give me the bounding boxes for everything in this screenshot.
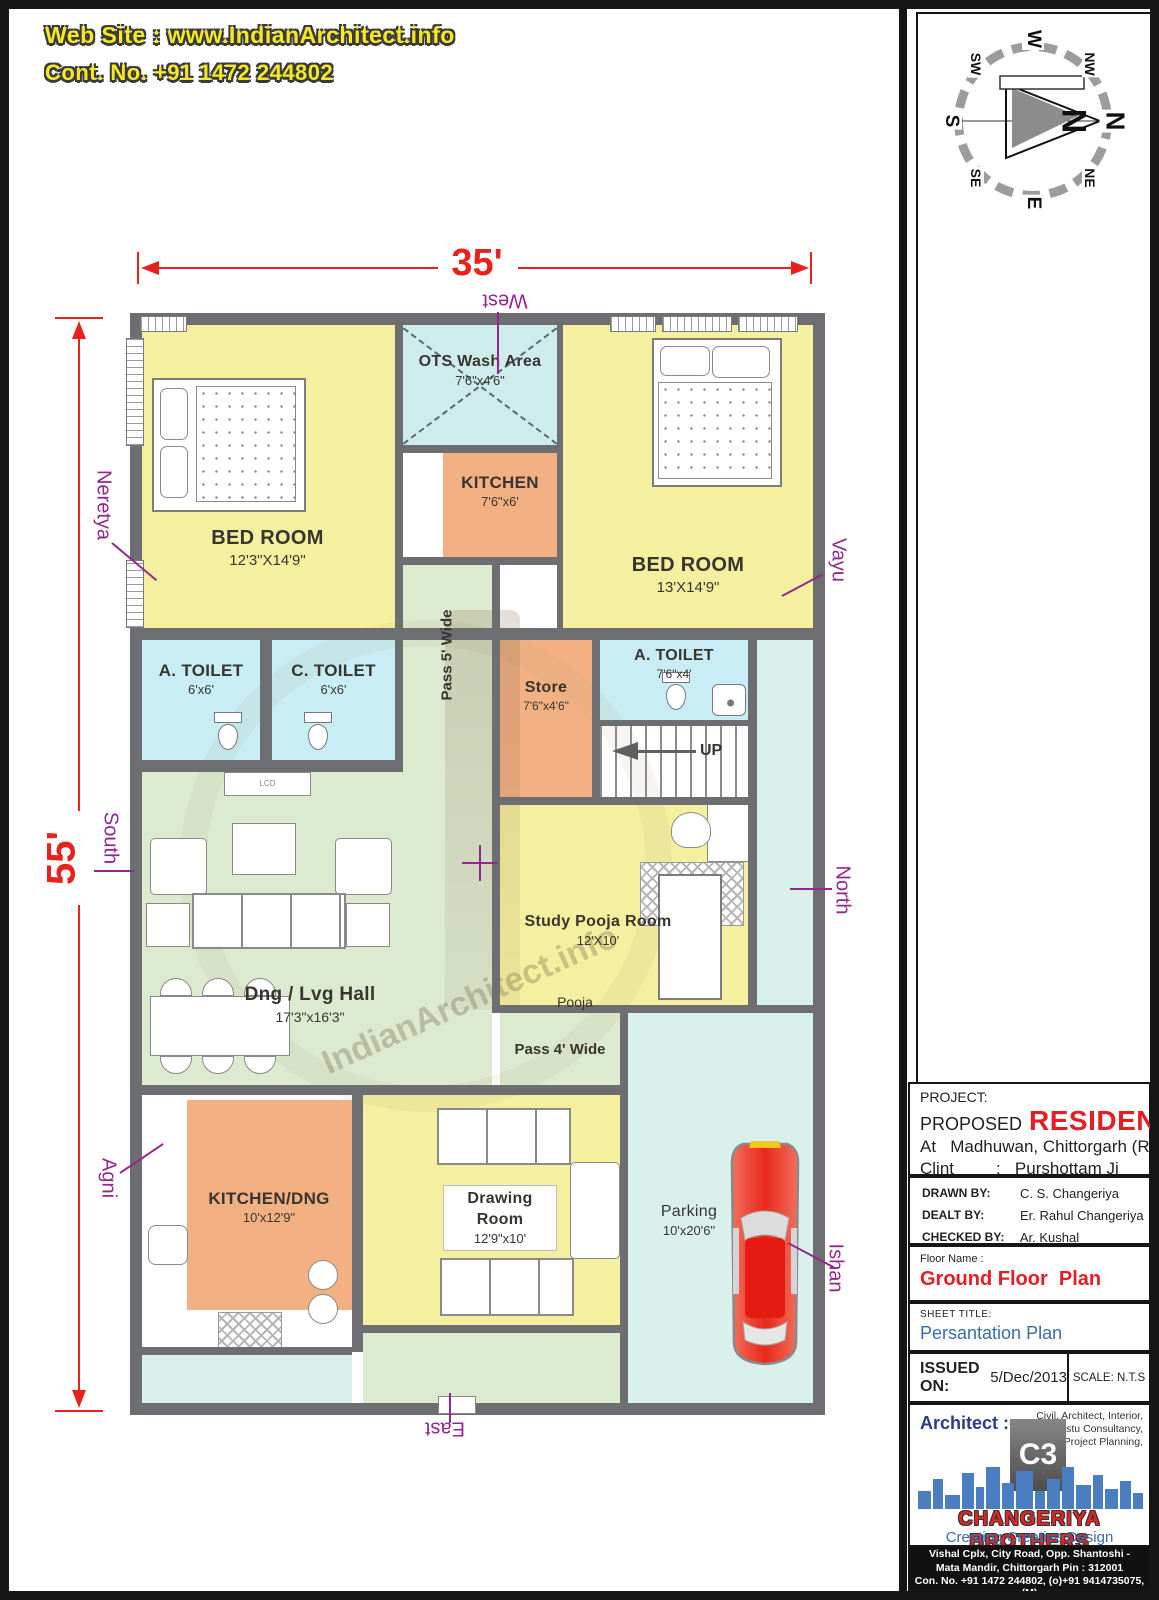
room-name: C. TOILET [272,660,395,682]
room-name: Dng / Lvg Hall [200,983,420,1008]
attached-toilet2-label: A. TOILET 7'6"x4' [600,646,748,682]
coffee-table-icon [232,823,296,875]
proposed-label: PROPOSED [920,1114,1022,1135]
wall [403,557,557,565]
vastu-cross [479,845,481,881]
wall [403,445,557,453]
project-location: At Madhuwan, Chittorgarh (Raj.) [920,1137,1149,1157]
window [662,316,732,332]
direction-north: North [831,866,854,915]
drawn-by-value: C. S. Changeriya [1020,1186,1119,1201]
drawing-room-label: Drawing Room 12'9"x10' [443,1185,557,1251]
sheet-title-label: SHEET TITLE: [920,1309,1149,1320]
direction-east: East [425,1417,465,1440]
tv-unit-icon: LCD [224,772,311,796]
room-name: KITCHEN [443,472,557,494]
sofa-icon [440,1258,574,1316]
up-label: UP [700,741,722,762]
bedroom2-label: BED ROOM 13'X14'9" [578,552,798,598]
side-passage-floor [757,640,813,1005]
issued-box: ISSUED ON: 5/Dec/2013 SCALE: N.T.S [908,1352,1151,1403]
study-label: Study Pooja Room 12'X10' [498,912,698,950]
project-type: RESIDENTIAL [1029,1105,1159,1137]
direction-ishan: Ishan [824,1244,847,1293]
room-name: Study Pooja Room [498,912,698,933]
room-name: A. TOILET [142,660,260,682]
height-dimension: 55' [40,831,85,885]
address-box: Vishal Cplx, City Road, Opp. Shantoshi -… [908,1545,1151,1591]
lcd-label: LCD [259,779,275,788]
floor-plan-sheet: Web Site : www.IndianArchitect.info Cont… [0,0,1159,1600]
burner-icon [308,1260,338,1290]
sofa-icon [437,1108,571,1165]
compass-e: E [1022,195,1044,212]
washbasin-icon [712,684,746,716]
side-table-icon [346,903,390,947]
dim-tick [137,252,139,284]
sheet-title: Persantation Plan [920,1323,1149,1344]
pillow-icon [712,346,770,378]
kitchendng-label: KITCHEN/DNG 10'x12'9" [183,1188,355,1227]
kitchen-platform [403,453,443,557]
room-name: Drawing Room [444,1189,556,1231]
attached-toilet1-label: A. TOILET 6'x6' [142,660,260,699]
wall [142,1347,352,1355]
room-name: Parking [633,1202,745,1223]
armchair-icon [150,838,207,895]
bedroom1-label: BED ROOM 12'3"X14'9" [160,525,375,571]
common-toilet-label: C. TOILET 6'x6' [272,660,395,699]
room-size: 6'x6' [142,682,260,699]
room-size: 12'9"x10' [444,1231,556,1248]
compass-s: S [940,113,962,130]
address-line2: Mata Mandir, Chittorgarh Pin : 312001 [910,1561,1149,1575]
pooja-label: Pooja [540,993,610,1011]
room-size: 7'6"x4'6" [498,699,594,715]
side-table-icon [146,903,190,947]
room-size: 7'6"x4' [600,667,748,683]
compass-sw: SW [968,51,984,78]
floor-name: Ground Floor Plan [920,1268,1149,1291]
pillow-icon [160,388,188,440]
room-name: KITCHEN/DNG [183,1188,355,1210]
credits-box: DRAWN BY: C. S. Changeriya DEALT BY: Er.… [908,1176,1151,1245]
skyline-graphic [918,1467,1143,1509]
kitchen-label: KITCHEN 7'6"x6' [443,472,557,511]
stairs-arrow-line [634,750,696,753]
mattress-icon [196,386,296,502]
rear-strip-floor [142,1355,352,1403]
direction-south: South [99,812,122,864]
dim-line [78,336,80,811]
compass-se: SE [968,167,984,190]
room-name: A. TOILET [600,646,748,667]
window [738,316,798,332]
window [140,316,187,332]
leader-line [497,312,499,374]
compass-ne: NE [1082,166,1098,189]
door-opening [438,1396,476,1414]
room-size: 6'x6' [272,682,395,699]
armchair-icon [570,1162,620,1259]
pass4-label: Pass 4' Wide [490,1040,630,1060]
room-size: 12'X10' [498,933,698,950]
armchair-icon [335,838,392,895]
address-line1: Vishal Cplx, City Road, Opp. Shantoshi - [910,1547,1149,1561]
window [126,338,144,446]
pass5-label: Pass 5' Wide [437,610,457,701]
direction-agni: Agni [97,1158,120,1198]
wall [592,640,600,797]
project-box: PROJECT: PROPOSED RESIDENTIAL At Madhuwa… [908,1082,1151,1176]
room-name: Store [498,678,594,699]
website-text: Web Site : www.IndianArchitect.info [45,22,455,49]
leader-line [94,870,134,872]
kitchen-sink-icon [148,1225,188,1265]
hall-label: Dng / Lvg Hall 17'3"x16'3" [200,983,420,1026]
room-size: 7'6"x6' [443,494,557,511]
issued-on-label: ISSUED ON: [920,1360,984,1396]
wall [748,633,757,1005]
dim-tick [55,1410,103,1412]
dim-line [518,267,794,269]
stove-icon [218,1312,282,1352]
compass-w: W [1022,28,1044,50]
compass-n: N [1100,110,1131,133]
car-icon [725,1138,805,1373]
wall [492,797,757,805]
room-size: 7'6"x4'6" [403,373,557,390]
compass: N NE E SE S SW W NW N [938,26,1128,216]
room-size: 17'3"x16'3" [200,1008,420,1026]
architect-box: Architect :- Civil, Architect, Interior,… [908,1403,1151,1547]
compass-nw: NW [1082,50,1098,77]
wall [600,720,748,726]
dim-line [156,267,438,269]
dim-tick [55,317,103,319]
mattress-icon [658,382,772,479]
contact-text: Cont. No. +91 1472 244802 [45,60,333,86]
room-name: BED ROOM [578,552,798,578]
width-dimension: 35' [451,242,502,285]
architect-label: Architect :- [920,1413,1015,1434]
parking-label: Parking 10'x20'6" [633,1202,745,1240]
room-name: OTS Wash Area [403,352,557,373]
room-size: 10'x12'9" [183,1210,355,1227]
direction-neretya: Neretya [92,470,115,540]
room-name: BED ROOM [160,525,375,551]
panel-divider [899,0,907,1600]
sofa-icon [192,893,346,949]
window [126,560,144,628]
leader-line [449,1393,451,1423]
wall [363,1325,620,1333]
direction-west: West [482,289,527,312]
floor-name-box: Floor Name : Ground Floor Plan [908,1245,1151,1302]
sheet-title-box: SHEET TITLE: Persantation Plan [908,1302,1151,1352]
wall [557,325,563,628]
burner-icon [308,1294,338,1324]
direction-vayu: Vayu [827,538,850,582]
wall [142,760,403,772]
address-line3: Con. No. +91 1472 244802, (o)+91 9414735… [910,1574,1149,1599]
room-size: 13'X14'9" [578,578,798,598]
desk-chair-icon [671,812,711,848]
pillow-icon [160,446,188,498]
toilet-icon [214,712,242,750]
wall [260,640,272,760]
dealt-by-value: Er. Rahul Changeriya [1020,1208,1144,1223]
store-label: Store 7'6"x4'6" [498,678,594,714]
wall [395,325,403,772]
room-size: 12'3"X14'9" [160,551,375,571]
scale-value: SCALE: N.T.S [1073,1372,1145,1384]
floor-name-label: Floor Name : [920,1253,1149,1265]
wall [142,628,813,640]
dealt-by-label: DEALT BY: [922,1208,1020,1223]
toilet-icon [304,712,332,750]
wall [620,1013,628,1403]
room-size: 10'x20'6" [633,1223,745,1240]
study-desk-icon [707,800,751,862]
dim-line [78,905,80,1393]
dim-tick [810,252,812,284]
wall [142,1085,628,1095]
company-tagline: Creating Creative Design [910,1529,1149,1546]
ots-label: OTS Wash Area 7'6"x4'6" [403,352,557,390]
pillow-icon [660,346,710,376]
verandah-floor [363,1333,620,1403]
leader-line [790,888,832,890]
compass-needle-n: N [1054,109,1093,134]
window [610,316,656,332]
issued-on-date: 5/Dec/2013 [990,1369,1067,1386]
drawn-by-label: DRAWN BY: [922,1186,1020,1201]
project-label: PROJECT: [920,1089,1149,1105]
